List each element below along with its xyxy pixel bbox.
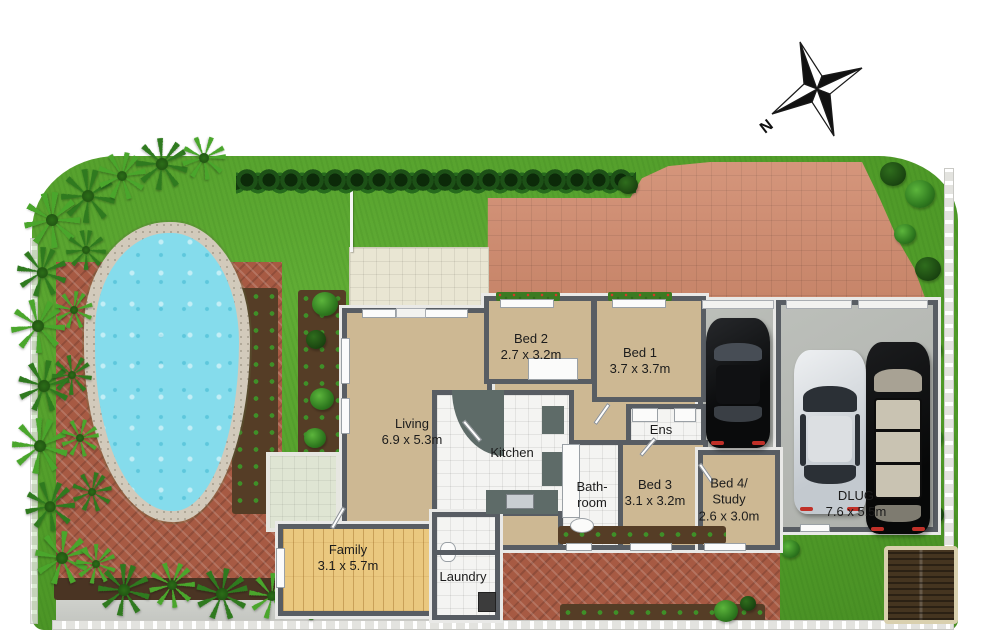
bathroom-basin: [570, 518, 594, 533]
car-roof: [716, 365, 761, 404]
room-name: Living: [382, 416, 443, 432]
kitchen-sink: [506, 494, 534, 509]
bush: [740, 596, 756, 611]
window: [276, 548, 285, 588]
car-black: [706, 318, 770, 448]
window: [566, 543, 592, 551]
garden-shed: [884, 546, 958, 624]
room-label-living: Living 6.9 x 5.3m: [382, 416, 443, 449]
bush: [618, 176, 638, 194]
garage-door: [786, 300, 852, 309]
room-label-bed1: Bed 1 3.7 x 3.7m: [610, 345, 671, 378]
car-taillight: [752, 441, 765, 445]
room-name: Family: [318, 542, 379, 558]
car-roof: [808, 416, 853, 462]
compass-rose: N: [758, 28, 878, 148]
bush: [714, 600, 738, 622]
car-side-window: [855, 414, 861, 466]
car-rear-window: [714, 406, 761, 422]
window: [424, 309, 468, 318]
kitchen-counter: [542, 406, 564, 434]
site-plan: N Living 6.9 x 5.3m Kitchen Bed 2 2.7 x …: [0, 0, 1000, 637]
room-label-garage: DLUG 7.6 x 5.5m: [826, 488, 887, 521]
car-rear-window: [804, 465, 856, 485]
room-label-bathroom: Bath- room: [576, 479, 607, 512]
car-taillight: [871, 527, 884, 531]
window: [704, 543, 746, 551]
bush: [894, 224, 916, 244]
car-windshield: [874, 369, 923, 392]
patio-paving: [350, 248, 488, 312]
bush: [915, 257, 941, 281]
hedge-row: [236, 166, 636, 194]
fence-bottom: [52, 620, 954, 630]
bush: [312, 292, 338, 316]
car-taillight: [711, 441, 724, 445]
room-dims: 2.7 x 3.2m: [501, 347, 562, 363]
room-name: Bed 3: [625, 477, 686, 493]
room-dims: 2.6 x 3.0m: [699, 508, 760, 524]
garage-door: [702, 300, 774, 309]
window: [341, 398, 350, 434]
garage-door: [858, 300, 928, 309]
ensuite-shower: [674, 408, 696, 422]
bush: [306, 330, 326, 349]
room-name: Bed 2: [501, 331, 562, 347]
room-name: Bed 1: [610, 345, 671, 361]
room-label-bed4: Bed 4/ Study 2.6 x 3.0m: [699, 476, 760, 525]
room-name: Ens: [650, 422, 672, 438]
wall-segment: [432, 550, 500, 555]
car-windshield: [803, 386, 858, 412]
bush: [780, 540, 800, 558]
car-side-window: [800, 414, 806, 466]
room-name: Bath-: [576, 479, 607, 495]
car-taillight: [800, 507, 813, 511]
window: [500, 299, 554, 308]
room-name: room: [576, 495, 607, 511]
window: [362, 309, 396, 318]
room-dims: 3.1 x 3.2m: [625, 493, 686, 509]
window: [341, 338, 350, 384]
car-roof-rack: [874, 398, 923, 500]
room-label-bed2: Bed 2 2.7 x 3.2m: [501, 331, 562, 364]
bush: [880, 162, 906, 186]
kitchen-counter: [542, 452, 564, 486]
room-dims: 3.7 x 3.7m: [610, 361, 671, 377]
room-label-family: Family 3.1 x 5.7m: [318, 542, 379, 575]
window: [630, 543, 672, 551]
room-label-kitchen: Kitchen: [490, 445, 533, 461]
ensuite-vanity: [632, 408, 658, 422]
bush: [304, 428, 326, 448]
room-name: Bed 4/: [699, 476, 760, 492]
car-windshield: [714, 343, 763, 361]
window: [800, 524, 830, 532]
bush: [905, 180, 935, 208]
car-taillight: [912, 527, 925, 531]
compass-north-label: N: [758, 117, 777, 138]
room-dims: 6.9 x 5.3m: [382, 432, 443, 448]
bush: [310, 388, 334, 410]
room-dims: 7.6 x 5.5m: [826, 504, 887, 520]
room-label-laundry: Laundry: [440, 569, 487, 585]
room-label-ensuite: Ens: [650, 422, 672, 438]
room-name: DLUG: [826, 488, 887, 504]
window: [612, 299, 666, 308]
porch: [266, 452, 340, 532]
room-dims: 3.1 x 5.7m: [318, 558, 379, 574]
room-name: Laundry: [440, 569, 487, 585]
washing-machine: [478, 592, 496, 612]
room-label-bed3: Bed 3 3.1 x 3.2m: [625, 477, 686, 510]
entry-door-opening: [396, 308, 426, 318]
room-name: Kitchen: [490, 445, 533, 461]
room-name: Study: [699, 492, 760, 508]
